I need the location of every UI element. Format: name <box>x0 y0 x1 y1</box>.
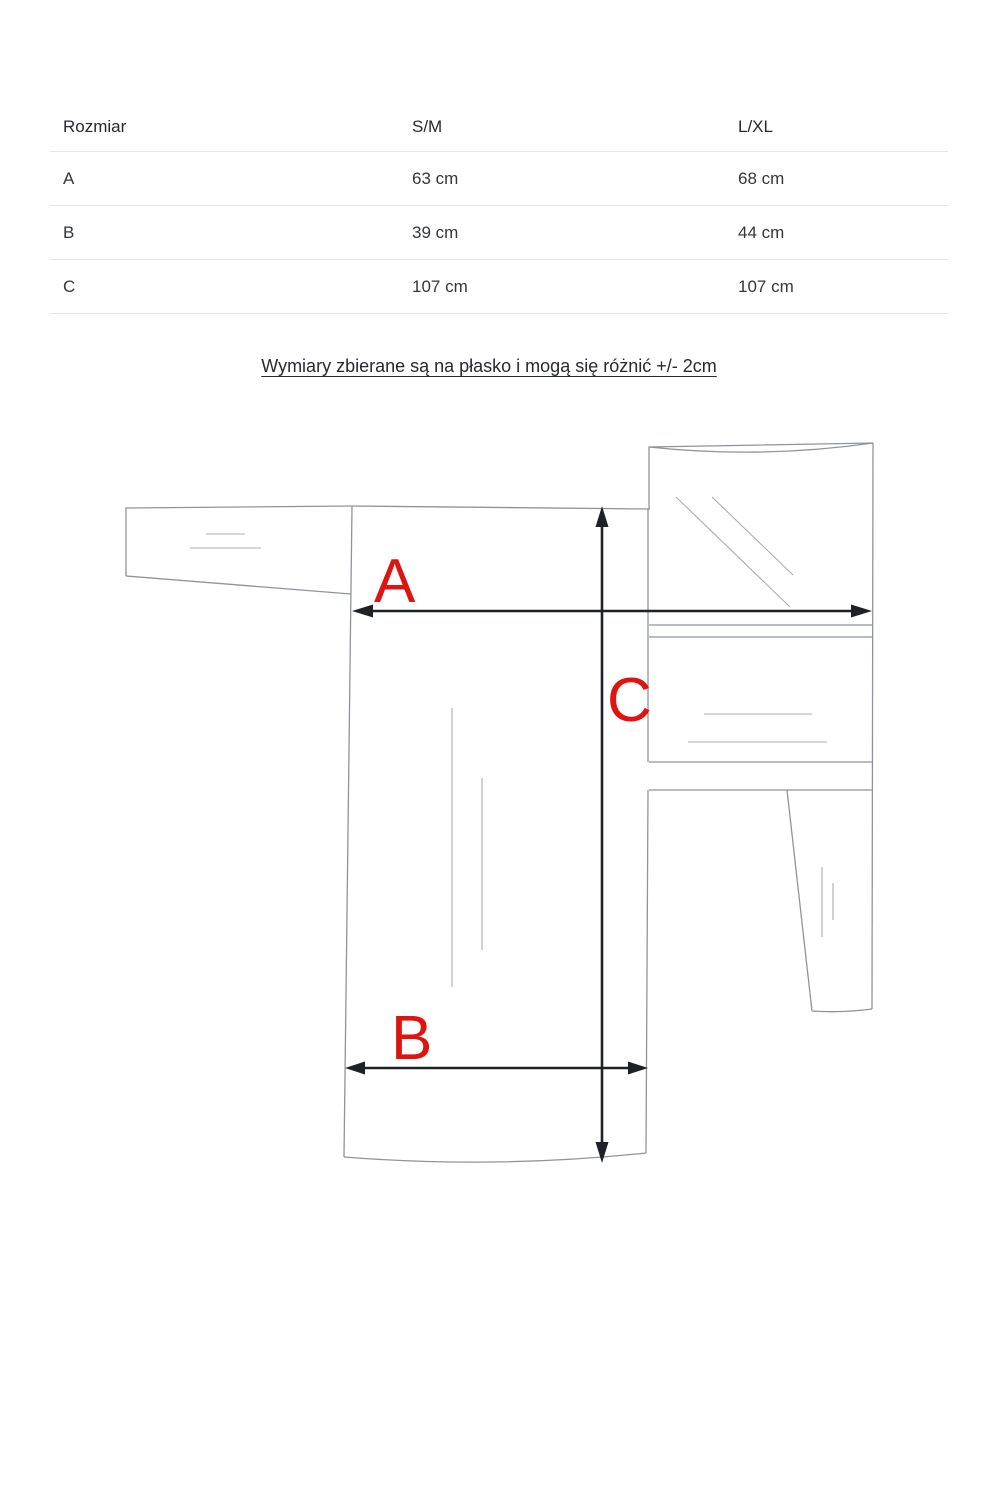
hood-outline <box>649 443 873 625</box>
dimension-label-a: A <box>374 547 416 616</box>
garment-diagram: A B C <box>0 0 1000 1500</box>
left-sleeve-outline <box>126 506 352 594</box>
dimension-label-c: C <box>607 666 652 735</box>
dimension-arrow-a <box>352 605 872 618</box>
pocket-panel-outline <box>649 637 872 762</box>
dimension-label-b: B <box>391 1004 432 1073</box>
right-sleeve-outline <box>787 443 873 1012</box>
size-guide-page: Rozmiar S/M L/XL A 63 cm 68 cm B 39 cm 4… <box>0 0 1000 1500</box>
dimension-arrow-c <box>596 506 609 1163</box>
